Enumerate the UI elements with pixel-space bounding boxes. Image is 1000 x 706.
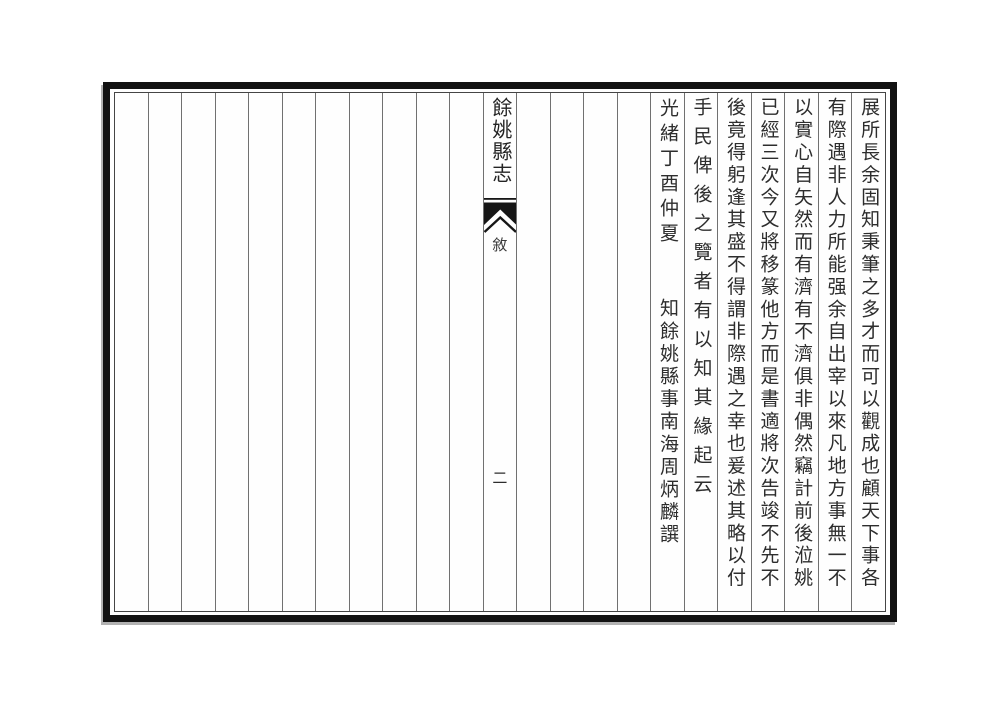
banxin-column: 餘姚縣志 敘 二 bbox=[483, 93, 517, 611]
blank-column bbox=[282, 93, 316, 611]
blank-column bbox=[248, 93, 282, 611]
blank-column bbox=[416, 93, 450, 611]
blank-column bbox=[382, 93, 416, 611]
blank-column bbox=[315, 93, 349, 611]
text-column-4: 已經三次今又將移篆他方而是書適將次告竣不先不 bbox=[751, 93, 785, 611]
column-text: 已經三次今又將移篆他方而是書適將次告竣不先不 bbox=[759, 97, 778, 611]
column-text: 展所長余固知秉筆之多才而可以觀成也顧天下事各 bbox=[859, 97, 878, 611]
text-column-1: 展所長余固知秉筆之多才而可以觀成也顧天下事各 bbox=[851, 93, 885, 611]
blank-column bbox=[449, 93, 483, 611]
text-column-5: 後竟得躬逢其盛不得謂非際遇之幸也爰述其略以付 bbox=[717, 93, 751, 611]
blank-column bbox=[617, 93, 651, 611]
blank-column bbox=[516, 93, 550, 611]
text-column-2: 有際遇非人力所能强余自出宰以來凡地方事無一不 bbox=[818, 93, 852, 611]
signature-column: 光緒丁酉仲夏 知餘姚縣事南海周炳麟譔 bbox=[650, 93, 684, 611]
fishtail-ornament-icon bbox=[484, 198, 517, 238]
blank-column bbox=[349, 93, 383, 611]
column-text: 後竟得躬逢其盛不得謂非際遇之幸也爰述其略以付 bbox=[725, 97, 744, 611]
author-signature: 知餘姚縣事南海周炳麟譔 bbox=[658, 298, 677, 547]
ruled-text-area: 餘姚縣志 敘 二 光緒丁酉仲夏 知餘姚縣事南海周炳麟譔 手民俾 bbox=[114, 92, 886, 612]
section-label: 敘 bbox=[484, 234, 517, 255]
blank-column bbox=[115, 93, 148, 611]
volume-title: 餘姚縣志 bbox=[490, 97, 510, 185]
date-line: 光緒丁酉仲夏 bbox=[658, 98, 677, 248]
banxin-title-wrap: 餘姚縣志 bbox=[484, 97, 517, 185]
blank-column bbox=[181, 93, 215, 611]
text-column-3: 以實心自矢然而有濟有不濟俱非偶然竊計前後涖姚 bbox=[784, 93, 818, 611]
column-text: 以實心自矢然而有濟有不濟俱非偶然竊計前後涖姚 bbox=[792, 97, 811, 611]
column-text: 有際遇非人力所能强余自出宰以來凡地方事無一不 bbox=[826, 97, 845, 611]
column-text: 手民俾後之覽者有以知其緣起云 bbox=[692, 97, 711, 611]
book-page-frame: 餘姚縣志 敘 二 光緒丁酉仲夏 知餘姚縣事南海周炳麟譔 手民俾 bbox=[103, 82, 897, 622]
text-column-6: 手民俾後之覽者有以知其緣起云 bbox=[684, 93, 718, 611]
page-number: 二 bbox=[484, 467, 517, 488]
blank-column bbox=[583, 93, 617, 611]
blank-column bbox=[215, 93, 249, 611]
blank-column bbox=[148, 93, 182, 611]
blank-column bbox=[550, 93, 584, 611]
